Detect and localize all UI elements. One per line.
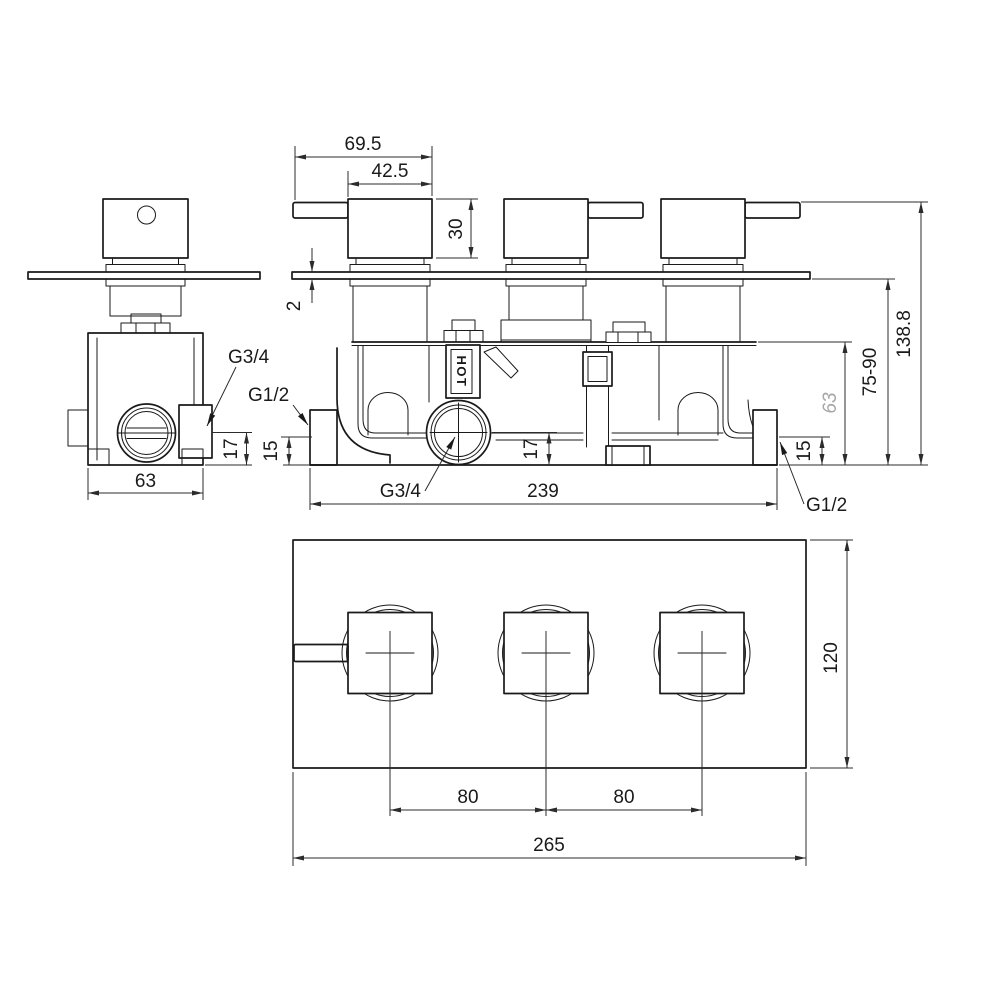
front-valve-body: HOT [310,320,777,465]
side-outlet-port-block [179,405,212,458]
side-view: 63 17 G3/4 [28,199,270,500]
dim-outlet-offset: 17 [521,438,542,459]
side-handle-body [103,199,188,258]
plate-handle-2 [498,605,594,816]
side-dim-body-width: 63 [135,471,156,492]
front-view: HOT G1/2 [248,134,928,516]
dim-plate-width: 265 [533,835,565,856]
plate-view: 80 80 265 120 [293,540,853,866]
dim-inlet-offset-left: 15 [261,440,282,461]
dim-handle-height: 30 [446,218,467,239]
front-inlet-left [310,410,337,465]
front-label-outlet: G3/4 [380,481,422,502]
side-wall-plate [28,272,260,279]
dim-install-depth: 75-90 [860,348,881,397]
front-wall-plate [292,272,810,279]
side-handle-lever-end [138,206,156,224]
front-label-inlet-right: G1/2 [806,495,847,516]
dim-handle-spacing-left: 80 [457,787,478,808]
plate-handle-3 [654,605,750,816]
dim-total-height: 138.8 [894,310,915,358]
front-inlet-right [753,410,777,465]
dim-inlet-offset-right: 15 [794,440,815,461]
front-handle-3 [661,199,800,342]
hot-marking: HOT [454,356,469,388]
dim-handle-total-depth: 69.5 [345,134,382,155]
front-label-inlet-left: G1/2 [248,385,289,406]
technical-drawing-canvas: 63 17 G3/4 [0,0,1000,1000]
side-label-outlet: G3/4 [228,347,270,368]
dim-body-width: 239 [527,481,559,502]
dim-handle-spacing-right: 80 [613,787,634,808]
side-dim-port-offset: 17 [221,438,242,459]
dim-plate-thickness: 2 [284,301,305,312]
plate-handle-1 [294,605,438,816]
dim-handle-body-depth: 42.5 [372,161,409,182]
dim-plate-height: 120 [821,642,842,674]
valve-technical-drawing: 63 17 G3/4 [0,0,1000,1000]
front-handle-2 [501,199,643,342]
front-handle-1 [293,199,432,342]
dim-body-height-ref: 63 [820,392,841,414]
